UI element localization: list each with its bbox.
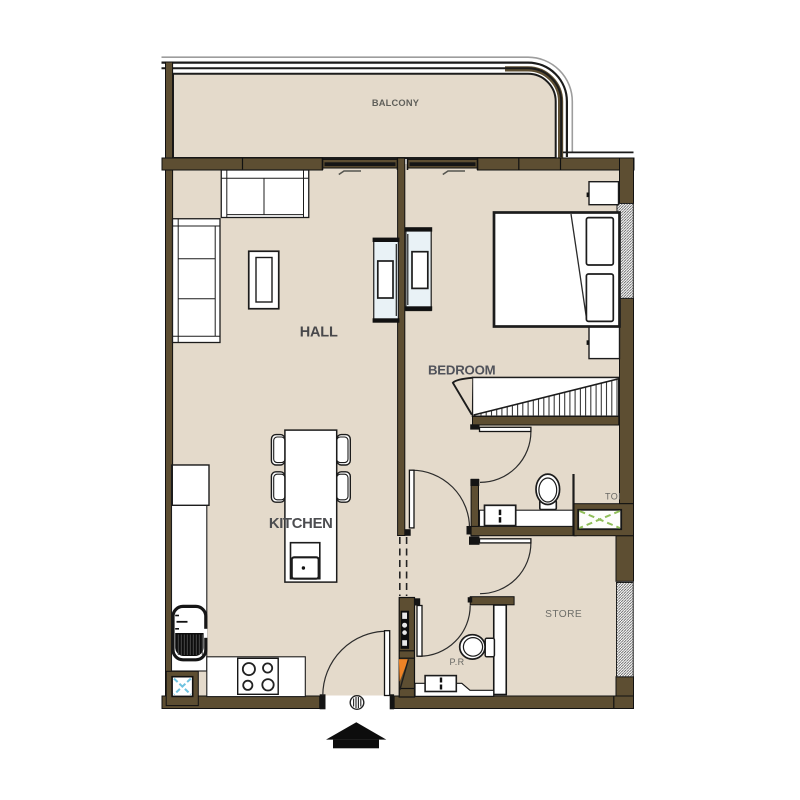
svg-text:HALL: HALL bbox=[300, 324, 338, 340]
svg-text:BALCONY: BALCONY bbox=[372, 98, 420, 108]
svg-text:STORE: STORE bbox=[545, 609, 582, 620]
svg-text:BEDROOM: BEDROOM bbox=[428, 363, 496, 378]
svg-text:P.R: P.R bbox=[449, 657, 464, 667]
svg-text:TOI: TOI bbox=[605, 492, 621, 502]
svg-text:KITCHEN: KITCHEN bbox=[269, 516, 333, 532]
